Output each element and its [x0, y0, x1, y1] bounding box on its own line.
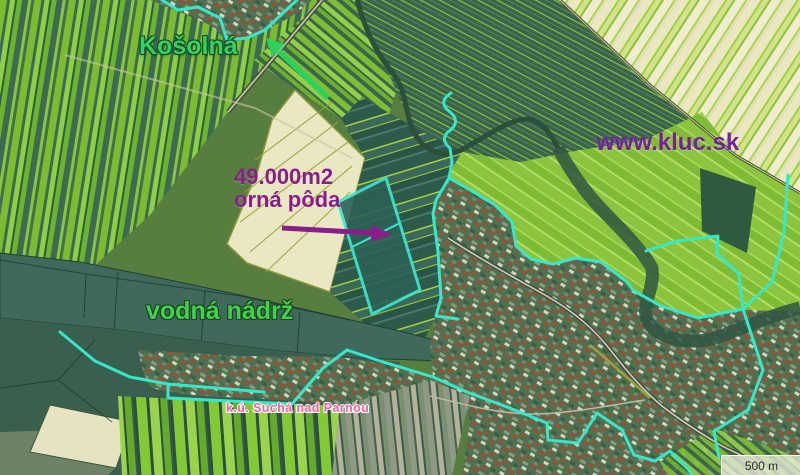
- strip-parcels-south: [118, 396, 340, 475]
- aerial-map: [0, 0, 800, 475]
- map-scale-label: 500 m: [745, 459, 778, 473]
- map-canvas[interactable]: Košolná 49.000m2 orná pôda www.kluc.sk v…: [0, 0, 800, 475]
- map-scale-bar: 500 m: [721, 455, 800, 475]
